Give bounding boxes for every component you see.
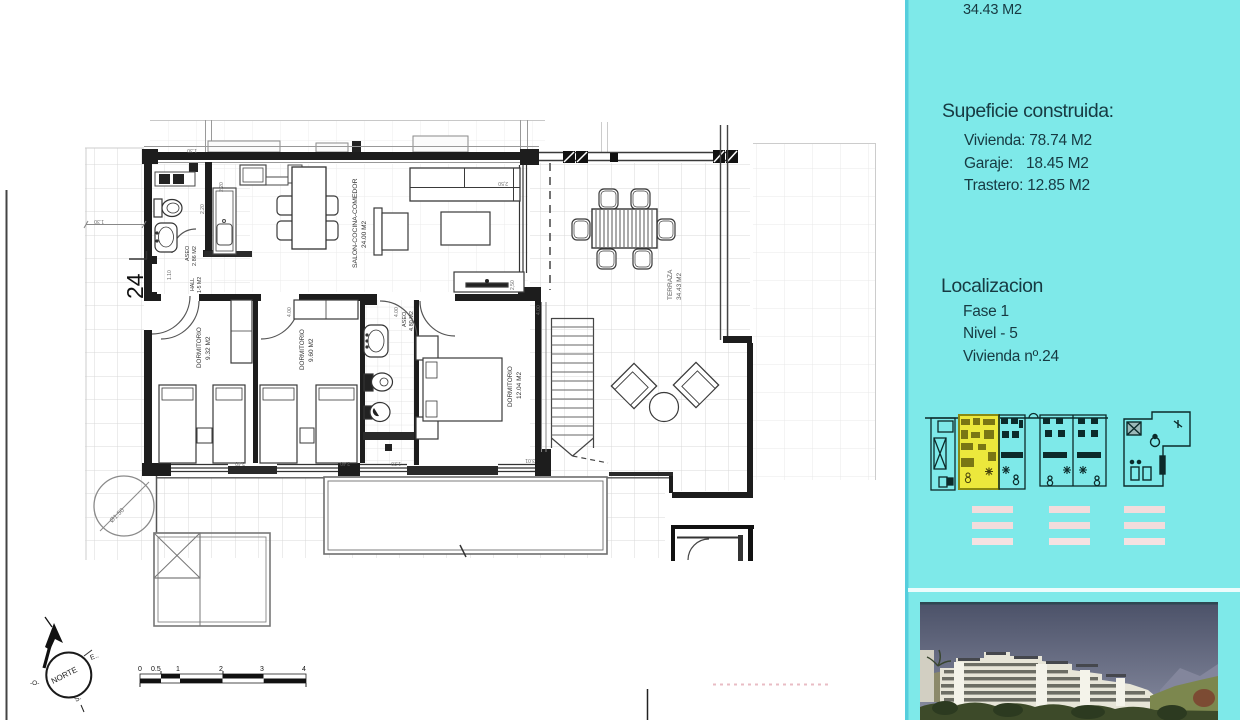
svg-text:34.43 M2: 34.43 M2 xyxy=(676,273,683,300)
svg-text:2.20: 2.20 xyxy=(200,204,206,214)
svg-text:Vivienda nº.24: Vivienda nº.24 xyxy=(963,348,1059,365)
svg-text:3: 3 xyxy=(260,666,264,673)
svg-text:1.20: 1.20 xyxy=(391,460,401,466)
svg-text:24.00 M2: 24.00 M2 xyxy=(361,221,368,248)
svg-text:Localizacion: Localizacion xyxy=(941,275,1043,297)
svg-text:ASEO: ASEO xyxy=(402,311,408,327)
svg-text:DORMITORIO: DORMITORIO xyxy=(299,329,306,370)
svg-text:0: 0 xyxy=(138,666,142,673)
svg-text:12.04 M2: 12.04 M2 xyxy=(516,372,523,399)
svg-text:Fase 1: Fase 1 xyxy=(963,303,1009,320)
svg-text:2.20: 2.20 xyxy=(219,182,225,192)
svg-text:2.86 M2: 2.86 M2 xyxy=(192,246,198,266)
svg-text:4.00: 4.00 xyxy=(536,305,542,315)
svg-text:Supeficie construida:: Supeficie construida: xyxy=(942,100,1114,122)
svg-text:Garaje:18.45 M2: Garaje:18.45 M2 xyxy=(964,155,1089,172)
svg-text:0.5: 0.5 xyxy=(151,666,161,673)
svg-text:9.60 M2: 9.60 M2 xyxy=(308,338,315,362)
svg-text:-O-: -O- xyxy=(30,680,39,687)
svg-text:34.43 M2: 34.43 M2 xyxy=(963,2,1022,18)
svg-text:2.40: 2.40 xyxy=(235,460,245,466)
svg-text:DORMITORIO: DORMITORIO xyxy=(507,366,514,407)
svg-text:9.32 M2: 9.32 M2 xyxy=(205,336,212,360)
svg-text:ASEO: ASEO xyxy=(185,245,191,261)
svg-text:1.10: 1.10 xyxy=(167,270,173,280)
svg-text:1: 1 xyxy=(176,666,180,673)
svg-text:4.00: 4.00 xyxy=(287,307,293,317)
svg-text:4.00: 4.00 xyxy=(394,307,400,317)
svg-text:TERRAZA: TERRAZA xyxy=(667,269,674,300)
svg-text:Trastero: 12.85 M2: Trastero: 12.85 M2 xyxy=(964,177,1090,194)
svg-text:2,50: 2,50 xyxy=(498,180,508,186)
svg-text:4: 4 xyxy=(302,666,306,673)
svg-text:24: 24 xyxy=(122,273,148,299)
svg-text:4.80 M2: 4.80 M2 xyxy=(409,311,415,331)
svg-text:HALL: HALL xyxy=(190,278,196,291)
svg-text:SALON-COCINA-COMEDOR: SALON-COCINA-COMEDOR xyxy=(352,178,359,268)
svg-text:1-5 M2: 1-5 M2 xyxy=(197,277,203,293)
svg-text:2,50: 2,50 xyxy=(510,280,516,290)
svg-text:3.01: 3.01 xyxy=(525,457,535,463)
svg-text:Vivienda: 78.74 M2: Vivienda: 78.74 M2 xyxy=(964,132,1092,149)
svg-text:1.30: 1.30 xyxy=(94,218,104,224)
svg-text:DORMITORIO: DORMITORIO xyxy=(196,327,203,368)
svg-text:2: 2 xyxy=(219,666,223,673)
svg-text:1.30: 1.30 xyxy=(187,147,197,153)
svg-text:Nivel - 5: Nivel - 5 xyxy=(963,325,1018,342)
svg-text:2.40: 2.40 xyxy=(340,460,350,466)
